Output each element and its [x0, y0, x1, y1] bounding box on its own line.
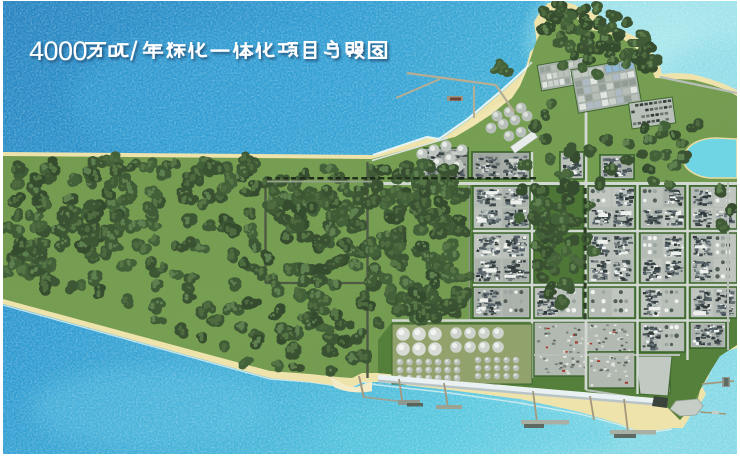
- svg-text:4000: 4000: [29, 36, 87, 66]
- svg-text:/: /: [130, 36, 138, 66]
